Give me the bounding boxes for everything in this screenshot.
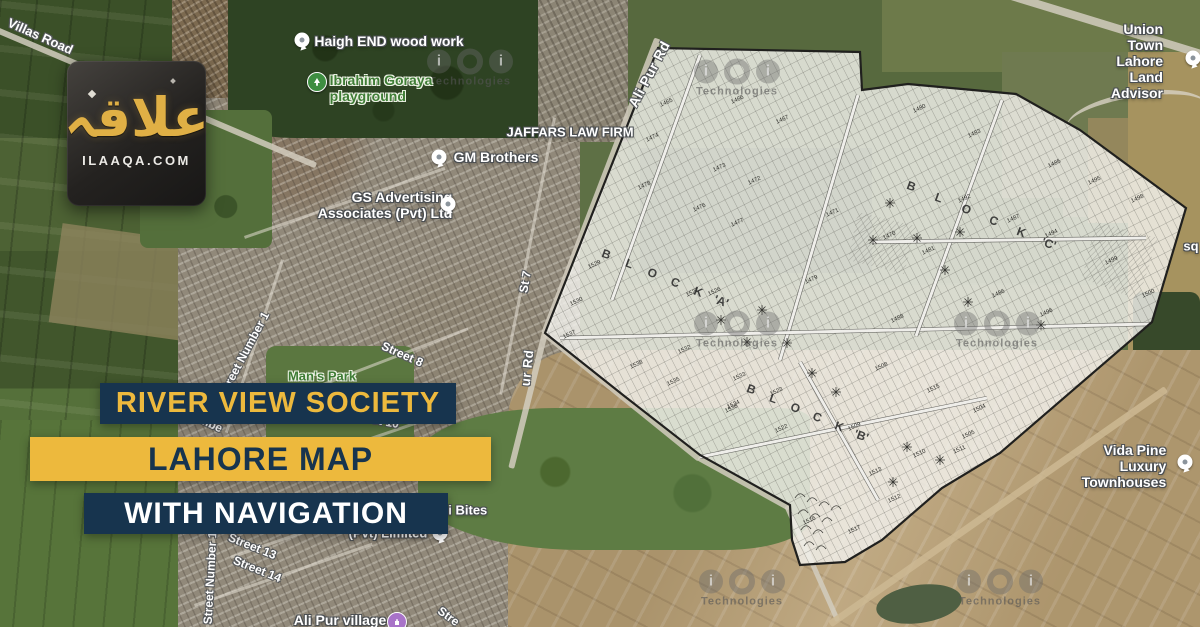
ilaaqa-domain-text: ILAAQA.COM [82,153,191,168]
ilaaqa-logo: علاقہ ILAAQA.COM [67,61,206,206]
technologies-watermark: iiTechnologies [954,569,1046,608]
banner-society-name-text: RIVER VIEW SOCIETY [116,387,440,420]
ali-pur-village-pin-icon [387,612,407,627]
map-label: Ali Pur village [294,612,387,627]
union-town-pin-icon [1186,51,1200,66]
technologies-watermark: iiTechnologies [951,311,1043,350]
technologies-watermark: iiTechnologies [691,311,783,350]
gm-brothers-pin-icon [432,150,447,165]
technologies-watermark: iiTechnologies [691,59,783,98]
banner-lahore-map: LAHORE MAP [30,437,491,481]
haigh-end-pin-icon [295,33,310,48]
map-label: GM Brothers [454,149,539,165]
map-label: Vida Pine Luxury Townhouses [1082,442,1167,490]
sparkle-icon [170,78,176,84]
banner-society-name: RIVER VIEW SOCIETY [100,383,456,424]
technologies-watermark: iiTechnologies [424,49,516,88]
gs-advertising-pin-icon [441,197,456,212]
map-label: Haigh END wood work [314,33,463,49]
map-label: JAFFARS LAW FIRM [506,126,633,141]
banner-lahore-map-text: LAHORE MAP [148,441,373,478]
vida-pine-pin-icon [1178,455,1193,470]
ilaaqa-arabic-calligraphy: علاقہ [64,93,209,144]
map-label: Ibrahim Goraya playground [330,72,433,104]
map-label: Union Town Lahore Land Advisor [1089,21,1163,101]
banner-with-navigation: WITH NAVIGATION [84,493,448,534]
promo-image: 1465146614671474147314721478147614771471… [0,0,1200,627]
map-label: GS Advertising Associates (Pvt) Ltd [318,189,453,221]
map-label: sq [1183,240,1198,255]
banner-with-navigation-text: WITH NAVIGATION [124,497,408,531]
playground-pin-icon [307,72,327,92]
technologies-watermark: iiTechnologies [696,569,788,608]
